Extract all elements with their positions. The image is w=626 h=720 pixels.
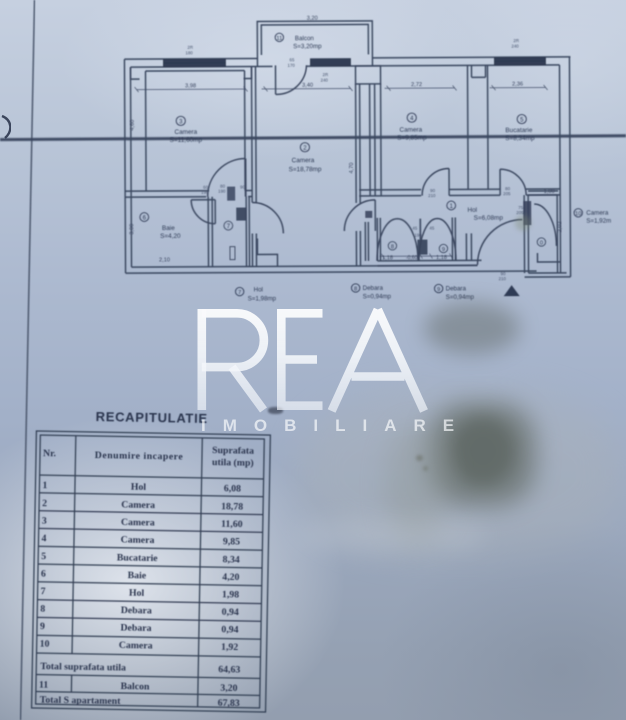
svg-text:IMOBILIARE: IMOBILIARE bbox=[201, 416, 471, 435]
